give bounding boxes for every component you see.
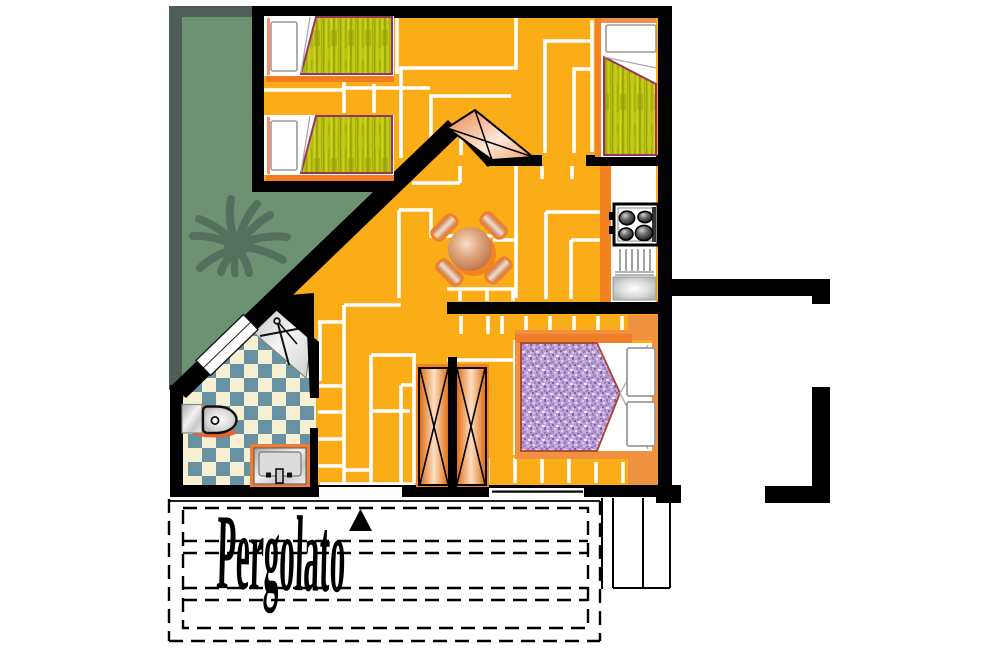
svg-text:Pergolato: Pergolato bbox=[215, 493, 347, 616]
